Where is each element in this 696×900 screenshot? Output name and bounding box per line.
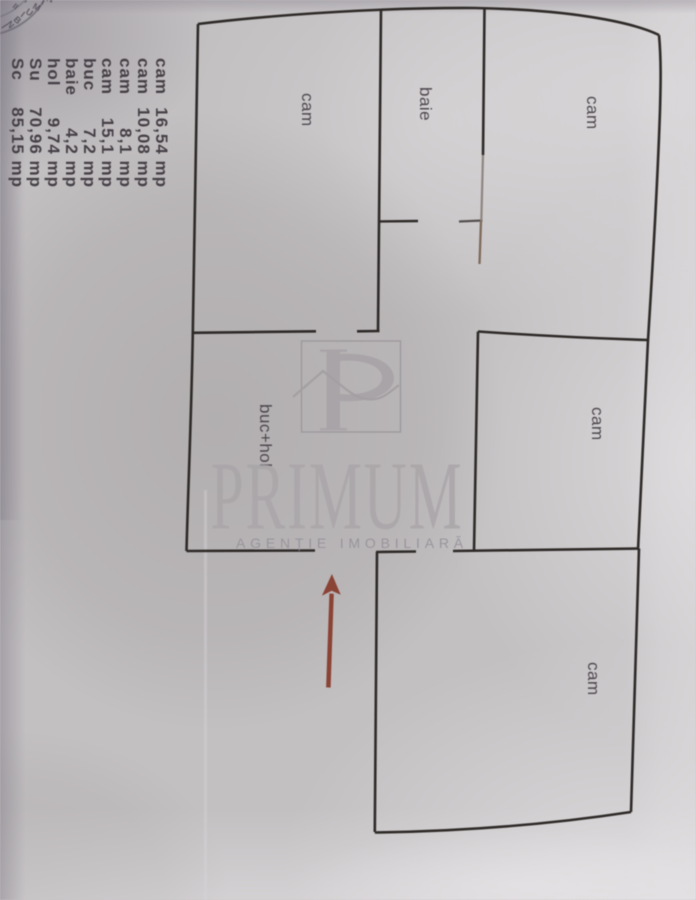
svg-text:cam: cam	[588, 407, 607, 441]
svg-text:Su: Su	[26, 58, 45, 82]
svg-text:7,2 mp: 7,2 mp	[80, 128, 99, 188]
svg-text:buc: buc	[80, 58, 99, 91]
svg-text:cam: cam	[116, 58, 135, 95]
svg-text:cam: cam	[134, 58, 153, 95]
svg-text:9,74 mp: 9,74 mp	[44, 118, 63, 188]
svg-text:10,08 mp: 10,08 mp	[134, 107, 153, 188]
svg-text:cam: cam	[98, 58, 117, 95]
svg-text:AGENȚIE IMOBILIARĂ: AGENȚIE IMOBILIARĂ	[236, 535, 468, 551]
svg-text:16,54 mp: 16,54 mp	[152, 107, 171, 188]
svg-text:baie: baie	[62, 58, 81, 96]
svg-text:15,1 mp: 15,1 mp	[98, 118, 117, 188]
svg-text:4,2 mp: 4,2 mp	[62, 128, 81, 188]
svg-text:cam: cam	[584, 662, 603, 696]
svg-text:cam: cam	[583, 96, 602, 130]
svg-text:cam: cam	[298, 93, 317, 127]
svg-text:Sc: Sc	[8, 58, 27, 81]
svg-text:cam: cam	[152, 58, 171, 95]
svg-text:70,96 mp: 70,96 mp	[26, 107, 45, 188]
svg-text:baie: baie	[416, 87, 435, 121]
svg-text:hol: hol	[44, 58, 63, 87]
svg-text:8,1 mp: 8,1 mp	[116, 128, 135, 188]
svg-text:85,15 mp: 85,15 mp	[8, 107, 27, 188]
